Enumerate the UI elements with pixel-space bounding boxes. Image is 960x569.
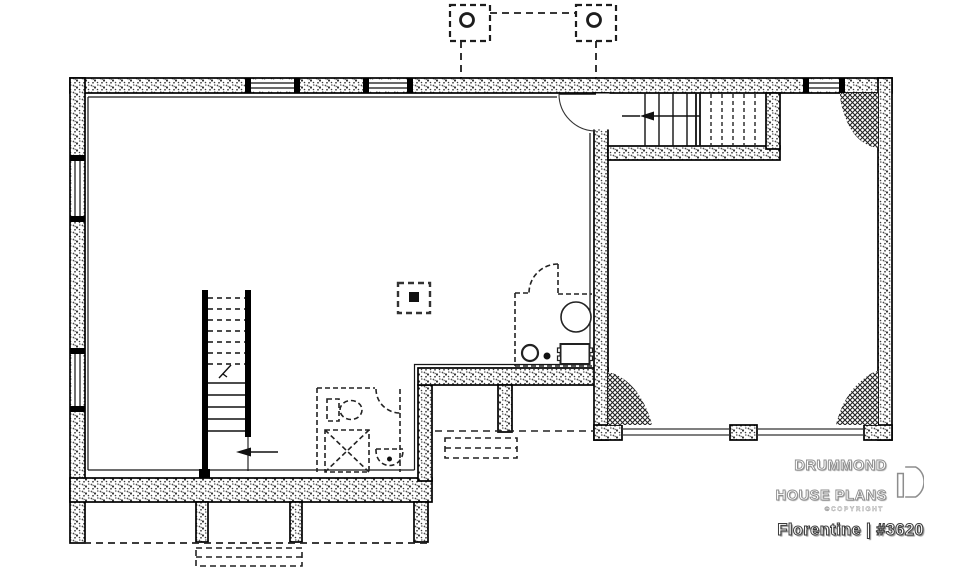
garage-door-center-pier <box>730 425 757 440</box>
wall-right-main-garage-left <box>594 93 608 440</box>
brand-row: DRUMMOND HOUSE PLANS <box>748 459 924 505</box>
copyright-label: ©COPYRIGHT <box>748 506 884 513</box>
stair-stringer-right <box>245 290 251 437</box>
window-top-garage <box>803 78 845 93</box>
porch-wall-right <box>414 502 428 542</box>
brand-name: DRUMMOND HOUSE PLANS <box>748 459 887 505</box>
window-top-1 <box>245 78 300 93</box>
floor-drain-icon <box>522 345 538 361</box>
wall-mechroom-south <box>418 368 608 385</box>
post-icon <box>409 292 419 302</box>
floor-plan-page: DRUMMOND HOUSE PLANS ©COPYRIGHT Florenti… <box>0 0 960 569</box>
wall-notch-vertical <box>418 385 432 481</box>
window-left-2 <box>70 348 85 412</box>
title-block: DRUMMOND HOUSE PLANS ©COPYRIGHT Florenti… <box>748 459 924 540</box>
drummond-d-logo-icon <box>892 462 924 502</box>
porch-pier-1 <box>196 502 208 542</box>
porch-pier-2 <box>290 502 302 542</box>
wall-bottom-main <box>70 478 432 502</box>
wall-stairwell-right <box>766 93 780 149</box>
stair-stringer-left <box>202 290 208 478</box>
brand-line2: HOUSE PLANS <box>776 488 887 504</box>
garage-door-jamb-right <box>864 425 892 440</box>
structural-post <box>398 283 430 313</box>
door-opening <box>593 94 610 130</box>
brand-line1: DRUMMOND <box>794 458 887 474</box>
wall-top <box>70 78 892 93</box>
water-heater-icon <box>561 302 591 332</box>
under-deck-pier <box>498 385 512 432</box>
wall-garage-right <box>878 78 892 440</box>
plan-title: Florentine | #3620 <box>748 521 924 540</box>
window-left-1 <box>70 155 85 222</box>
wall-stairwell-bottom <box>608 146 780 160</box>
garage-door-jamb-left <box>594 425 622 440</box>
window-top-2 <box>363 78 413 93</box>
drain-dot-icon <box>544 353 551 360</box>
laundry-tub-icon <box>558 344 593 364</box>
wall-left <box>70 78 85 543</box>
